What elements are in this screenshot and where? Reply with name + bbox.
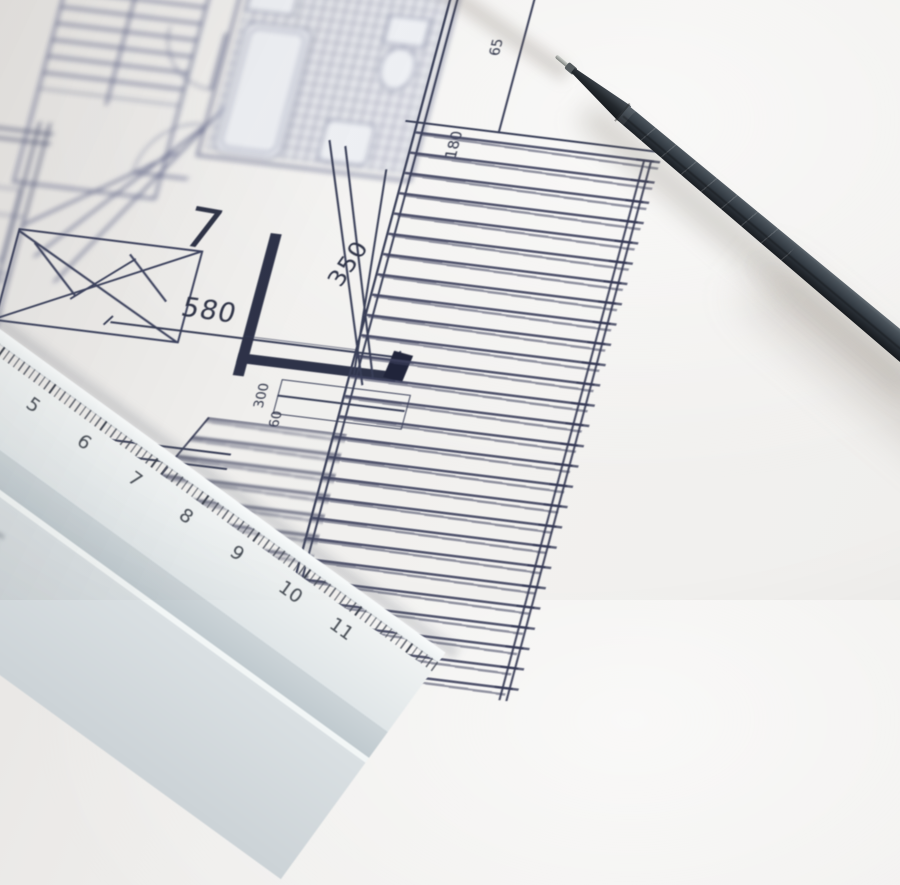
bed-zigzag-line: [70, 258, 136, 299]
dimension-label-door-width: 300: [251, 382, 274, 409]
bed-cross-line: [0, 251, 202, 319]
dimension-line: [498, 0, 549, 133]
extension-line: [245, 336, 357, 351]
dimension-label-room-width: 580: [178, 292, 240, 329]
bed-zigzag-line: [34, 242, 76, 296]
photo-canvas: { "paper": { "color": "#efeeec" }, "plan…: [0, 0, 900, 600]
bed: [0, 228, 203, 343]
dimension-label-terrace-offset: 65: [487, 38, 508, 57]
bed-zigzag-line: [129, 254, 167, 302]
